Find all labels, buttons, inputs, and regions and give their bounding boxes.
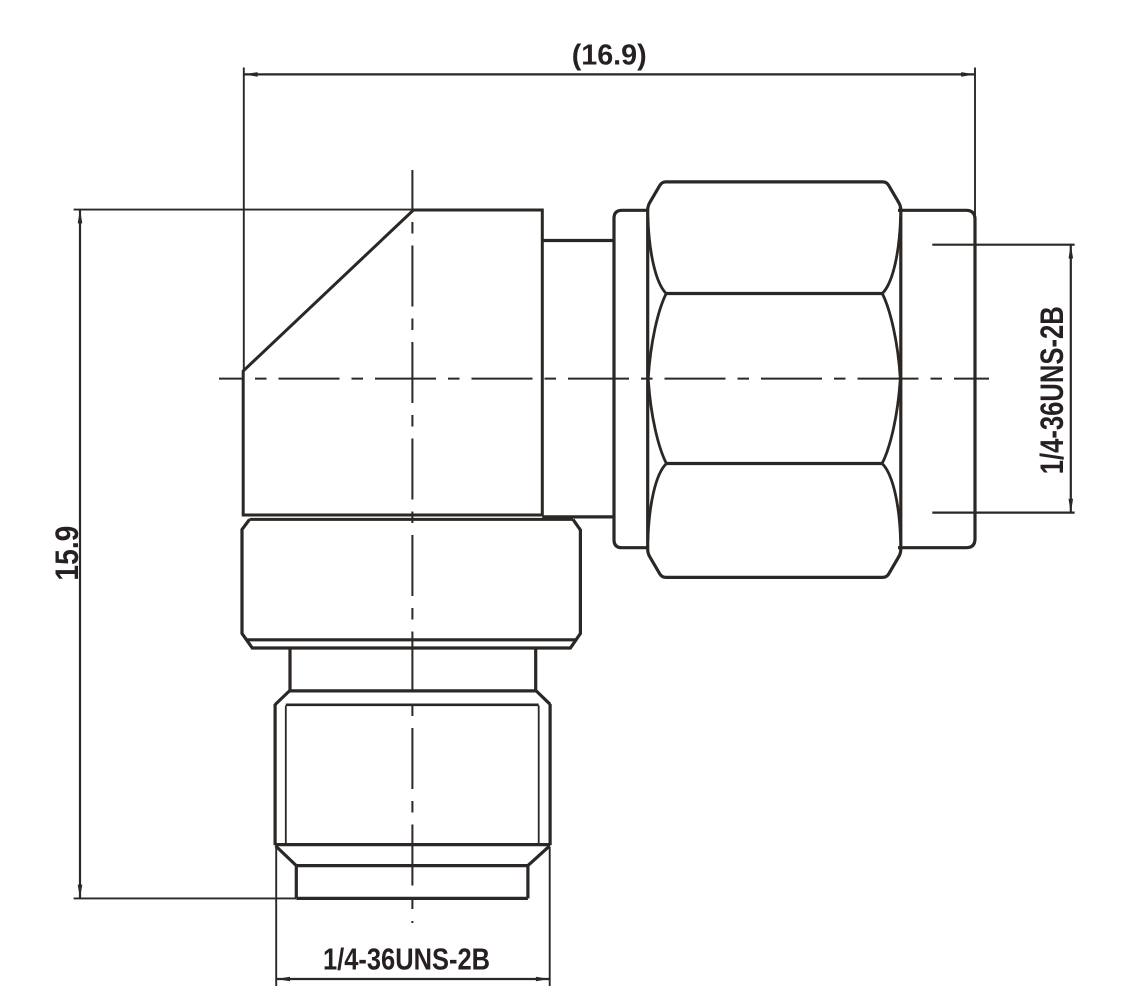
svg-text:15.9: 15.9 — [49, 526, 85, 581]
svg-text:1/4-36UNS-2B: 1/4-36UNS-2B — [323, 943, 490, 977]
svg-text:1/4-36UNS-2B: 1/4-36UNS-2B — [1034, 306, 1070, 474]
svg-text:(16.9): (16.9) — [572, 40, 647, 72]
